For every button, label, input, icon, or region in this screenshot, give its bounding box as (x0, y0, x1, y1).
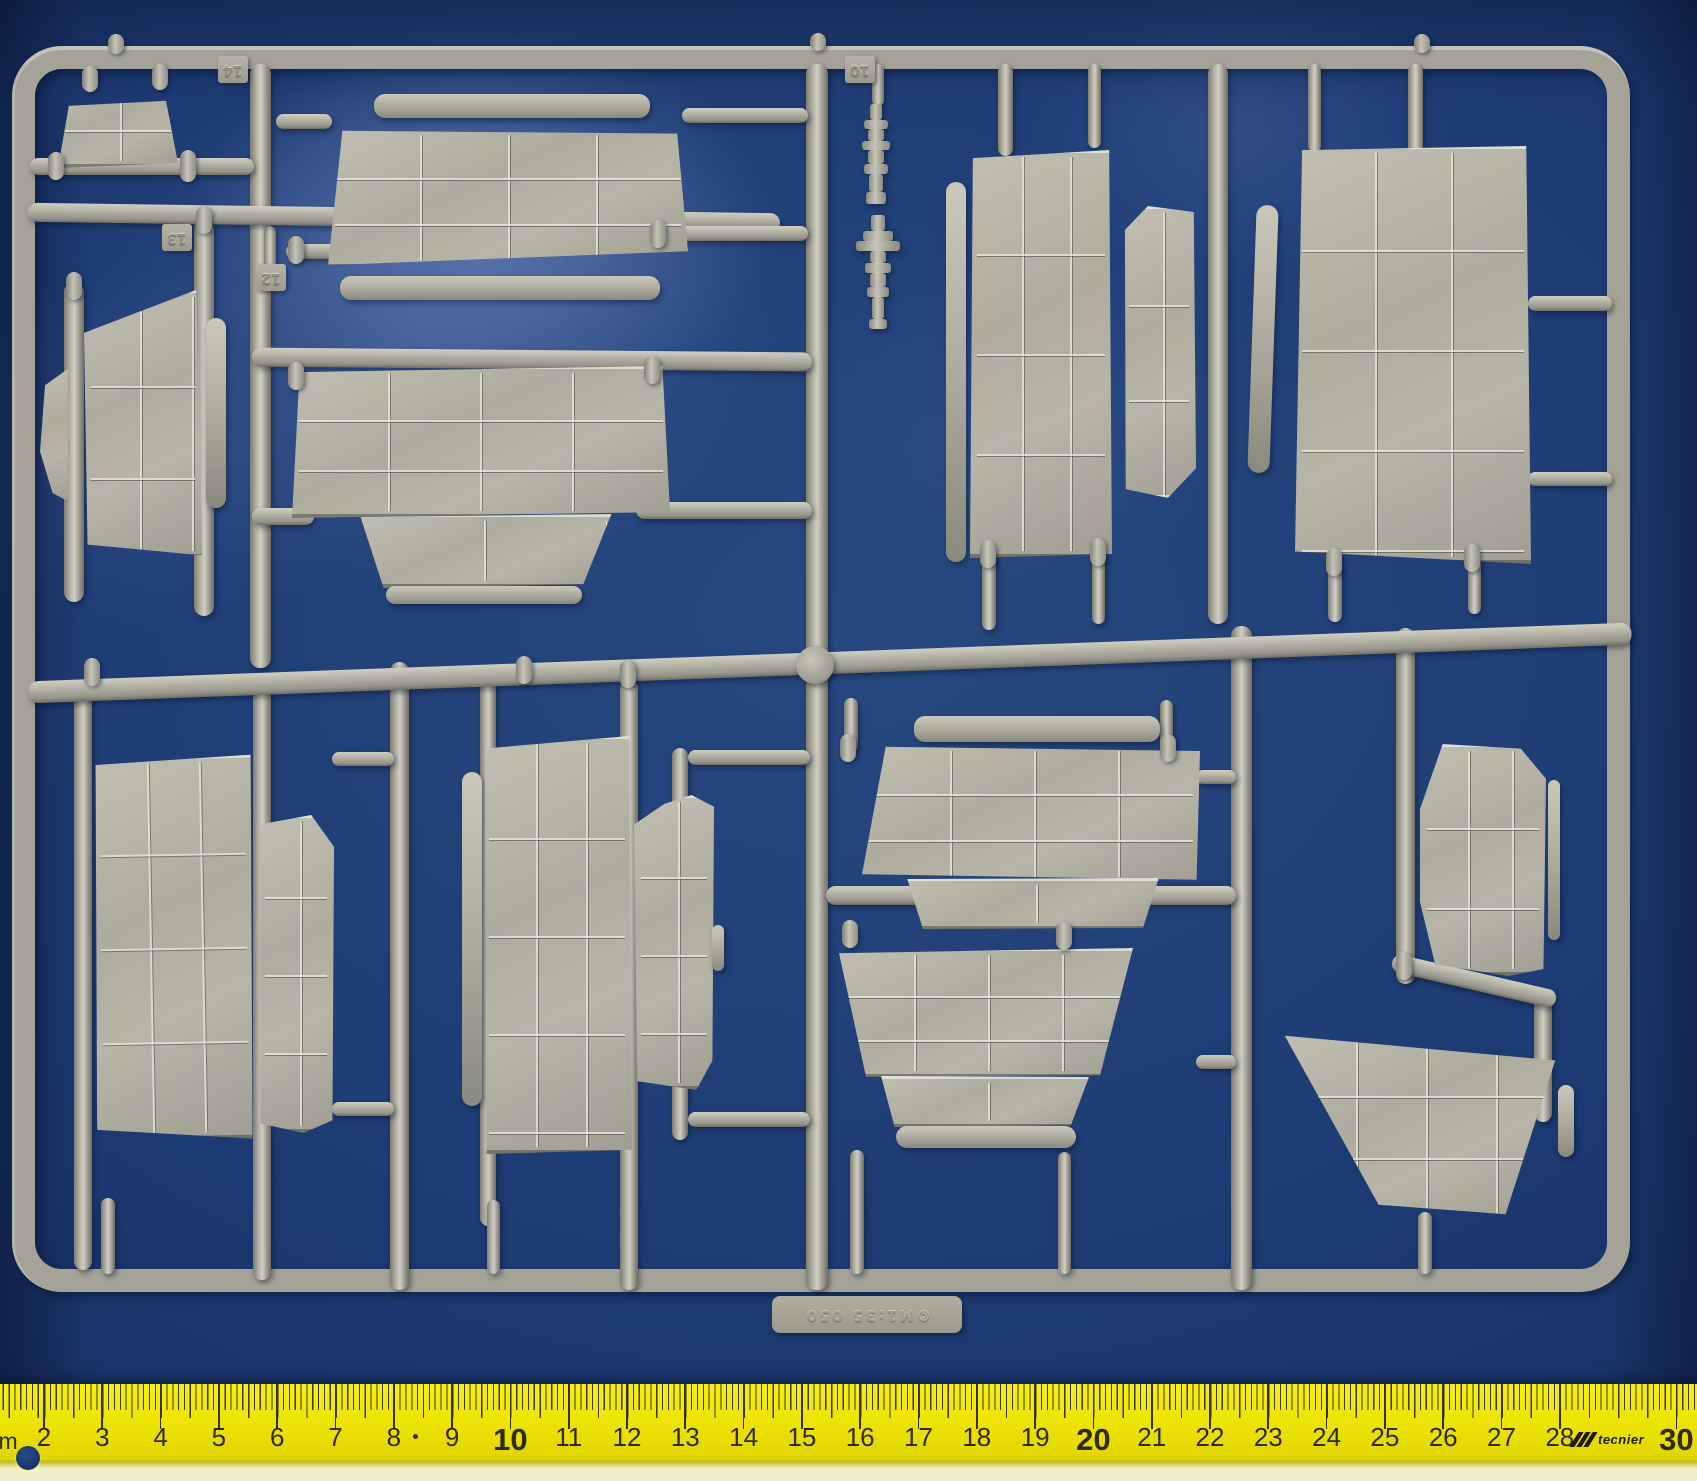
gate (998, 64, 1013, 156)
sprue-gate-knob (1090, 538, 1106, 566)
ruler-cm-number: 15 (787, 1422, 816, 1453)
thin-strip-part (462, 772, 482, 1106)
ruler-cm-number: 27 (1487, 1422, 1516, 1453)
part-number-tag: 13 (162, 224, 192, 251)
ruler-cm-number: 4 (153, 1422, 167, 1453)
gate (276, 114, 332, 129)
ruler-cm-number: 16 (846, 1422, 875, 1453)
part-post (82, 66, 98, 92)
panel-rail (386, 586, 582, 604)
gate (1088, 64, 1101, 148)
part-number-text: 10 (850, 62, 869, 78)
panel-rail (896, 1126, 1076, 1148)
sprue-gate-knob (1326, 548, 1342, 576)
panel-rail (374, 94, 650, 118)
ruler-cm-number: 21 (1137, 1422, 1166, 1453)
sprue-molded-label: ©M1:35 050 (772, 1296, 962, 1333)
ruler-dot-mark (413, 1434, 418, 1439)
gate (1528, 296, 1612, 311)
part-number-text: 13 (167, 230, 186, 246)
part-number-tag: 14 (218, 56, 248, 83)
sprue-gate-knob (108, 34, 124, 54)
gate (1196, 770, 1236, 784)
ruler-cm-number: 11 (555, 1422, 582, 1453)
panel-bed-side-far-right (1295, 146, 1531, 564)
ruler-cm-number: 18 (962, 1422, 991, 1453)
ruler-cm-number: 30 (1659, 1422, 1693, 1458)
sprue-gate-knob (48, 152, 64, 180)
ruler-cm-number: 6 (270, 1422, 284, 1453)
sprue-gate-knob (1396, 952, 1412, 980)
runner-vertical (1231, 626, 1252, 1290)
panel-hexagonal-right (1420, 744, 1546, 976)
panel-rail (340, 276, 660, 300)
gate (1528, 472, 1612, 486)
ruler-cm-number: 12 (613, 1422, 642, 1453)
photo-model-kit-sprue: 14 13 12 10 ©M1:35 050 23456789101112131… (0, 0, 1697, 1481)
sprue-gate-knob (650, 220, 666, 248)
panel-narrow-notched (258, 815, 334, 1133)
panel-large-top (328, 128, 688, 268)
sprue-gate-knob (620, 660, 636, 688)
thin-strip-part (206, 318, 226, 508)
ruler-brand-logo: tecnier (1574, 1432, 1644, 1447)
gate (850, 1150, 864, 1274)
sprue-gate-knob (1160, 734, 1176, 762)
part-number-text: 12 (261, 270, 280, 286)
panel-tab (1558, 1085, 1574, 1157)
ruler-unit-label: cm (0, 1428, 18, 1455)
sprue-gate-knob (1464, 544, 1480, 572)
gate (688, 1112, 810, 1127)
sprue-gate-knob (644, 356, 660, 384)
sprue-gate-knob (288, 362, 304, 390)
gate (1058, 1152, 1071, 1274)
sprue-gate-knob (516, 656, 532, 684)
sprue-gate-knob (196, 206, 212, 234)
ruler-bevel-edge (0, 1460, 1697, 1481)
gate-rail (74, 686, 92, 1270)
gate (1408, 64, 1423, 154)
thin-strip-part (1548, 780, 1560, 940)
ruler-cm-number: 14 (729, 1422, 758, 1453)
ruler: 2345678910111213141516171819202122232425… (0, 1384, 1697, 1481)
ruler-cm-number: 24 (1312, 1422, 1341, 1453)
panel-trapezoid-center-lower (836, 948, 1136, 1078)
ruler-cm-number: 28 (1545, 1422, 1574, 1453)
panel-rail (914, 716, 1160, 742)
gate (332, 1102, 394, 1116)
sprue-gate-knob (1414, 34, 1430, 53)
ruler-brand-text: tecnier (1598, 1432, 1644, 1447)
ruler-cm-number: 5 (212, 1422, 226, 1453)
sprue-gate-knob (180, 150, 196, 182)
panel-bed-side-bottom-left (91, 755, 258, 1142)
gate (1418, 1212, 1432, 1274)
gate (487, 1200, 500, 1274)
sprue-gate-knob (842, 920, 858, 948)
runner-vertical (1208, 64, 1228, 624)
panel-skirt (872, 1076, 1098, 1128)
gate (332, 752, 394, 766)
ruler-cm-number: 25 (1370, 1422, 1399, 1453)
gate (1308, 64, 1321, 152)
ruler-cm-number: 22 (1196, 1422, 1225, 1453)
ruler-cm-number: 13 (671, 1422, 700, 1453)
part-number-tag: 10 (845, 56, 875, 83)
ruler-cm-number: 7 (328, 1422, 342, 1453)
runner-vertical (1396, 628, 1415, 984)
ruler-cm-number: 20 (1076, 1422, 1110, 1458)
gate (682, 108, 808, 123)
runner-junction-node (796, 646, 834, 684)
gate (688, 750, 810, 765)
sprue-gate-knob (980, 540, 996, 568)
panel-middle-skirt (358, 514, 614, 588)
panel-tab (712, 925, 724, 971)
ruler-cm-number: 23 (1254, 1422, 1283, 1453)
sprue-gate-knob (288, 236, 304, 264)
ruler-cm-number: 26 (1429, 1422, 1458, 1453)
part-post (152, 64, 168, 90)
cylinder-parts-stack (854, 215, 902, 329)
panel-large-middle (292, 366, 670, 518)
panel-bed-side-right-center (970, 150, 1112, 558)
ruler-cm-number: 3 (95, 1422, 109, 1453)
ruler-cm-number: 10 (493, 1422, 527, 1458)
ruler-cm-number: 19 (1021, 1422, 1050, 1453)
ruler-cm-number: 2 (37, 1422, 51, 1453)
gate (101, 1198, 115, 1274)
panel-trapezoid-center-upper (862, 744, 1200, 884)
sprue-molded-label-text: ©M1:35 050 (804, 1307, 931, 1323)
ruler-cm-number: 9 (445, 1422, 459, 1453)
sprue-gate-knob (66, 272, 82, 300)
ruler-cm-number: 8 (387, 1422, 401, 1453)
panel-skirt (902, 878, 1164, 930)
panel-left-tapered (84, 290, 202, 558)
sprue-gate-knob (840, 734, 856, 762)
sprue-gate-knob (1056, 922, 1072, 950)
panel-notched-strip (1122, 206, 1196, 504)
sprue-gate-knob (84, 658, 100, 686)
ruler-cm-number: 17 (904, 1422, 933, 1453)
gate (1196, 1055, 1236, 1069)
sprue-gate-knob (810, 33, 826, 51)
panel-bed-side-bottom-center (482, 736, 632, 1154)
ruler-hanging-hole (16, 1446, 40, 1470)
thin-strip-part (946, 182, 966, 562)
part-number-text: 14 (223, 62, 242, 78)
part-number-tag: 12 (256, 264, 286, 291)
panel-narrow-notched (634, 795, 714, 1090)
cylinder-parts-stack (854, 104, 898, 204)
